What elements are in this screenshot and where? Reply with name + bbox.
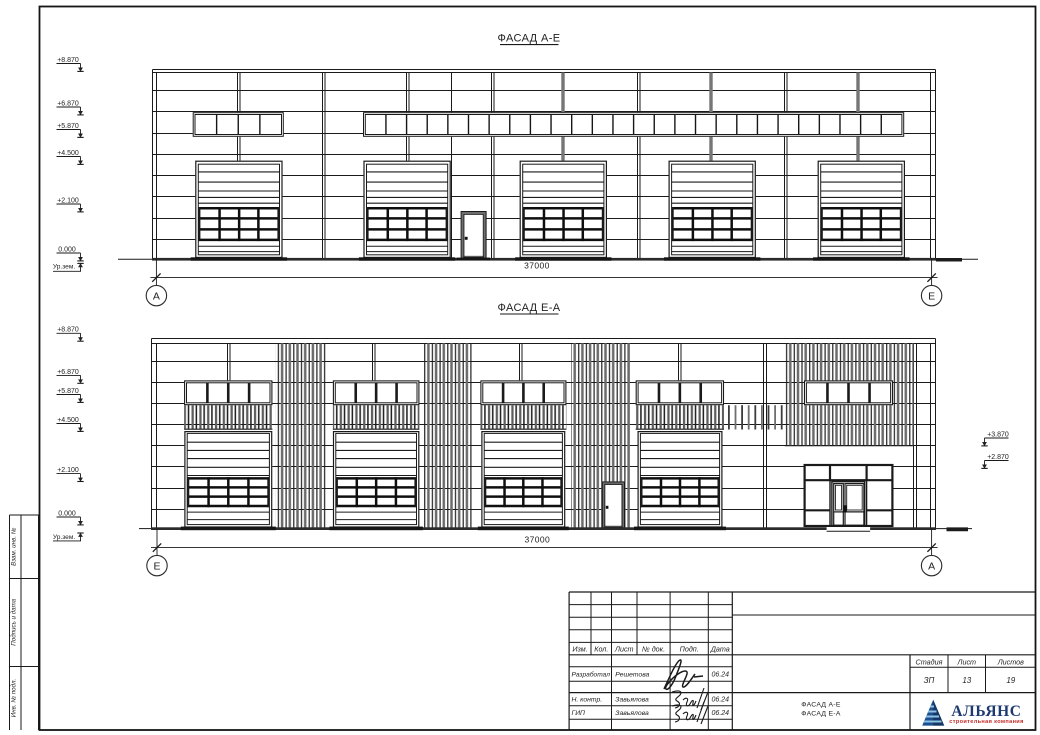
svg-text:+2.870: +2.870 xyxy=(987,454,1009,461)
svg-text:06.24: 06.24 xyxy=(712,710,730,717)
svg-text:Разработал: Разработал xyxy=(572,671,611,679)
svg-text:+5.870: +5.870 xyxy=(57,123,79,130)
svg-text:Лист: Лист xyxy=(614,645,634,654)
svg-text:+6.870: +6.870 xyxy=(57,100,79,107)
svg-text:Ур.зем.: Ур.зем. xyxy=(53,263,76,270)
svg-text:А: А xyxy=(928,560,935,572)
svg-text:Инв. № подл.: Инв. № подл. xyxy=(11,679,18,717)
svg-text:Н. контр.: Н. контр. xyxy=(572,697,603,704)
svg-text:06.24: 06.24 xyxy=(712,672,730,679)
svg-text:+3.870: +3.870 xyxy=(987,431,1009,438)
svg-text:Стадия: Стадия xyxy=(916,657,943,666)
svg-text:Листов: Листов xyxy=(997,657,1024,666)
svg-text:06.24: 06.24 xyxy=(712,697,730,704)
svg-text:+2.100: +2.100 xyxy=(57,467,79,474)
svg-text:Ур.зем.: Ур.зем. xyxy=(53,534,76,541)
svg-text:Завьялова: Завьялова xyxy=(615,710,649,717)
svg-text:ФАСАД А-Е: ФАСАД А-Е xyxy=(801,701,841,708)
svg-text:+4.500: +4.500 xyxy=(57,150,79,157)
svg-text:Кол.: Кол. xyxy=(594,645,608,654)
svg-text:Лист: Лист xyxy=(957,657,977,666)
svg-text:Дата: Дата xyxy=(710,645,730,654)
svg-text:Взам. инв. №: Взам. инв. № xyxy=(11,527,18,566)
svg-text:№ док.: № док. xyxy=(642,645,665,654)
svg-text:Решетова: Решетова xyxy=(615,672,649,679)
svg-text:Подп.: Подп. xyxy=(680,645,699,654)
svg-text:А: А xyxy=(153,290,160,302)
svg-text:Изм.: Изм. xyxy=(572,645,587,654)
svg-text:ГИП: ГИП xyxy=(572,710,586,717)
svg-text:+4.500: +4.500 xyxy=(57,417,79,424)
svg-text:+6.870: +6.870 xyxy=(57,369,79,376)
svg-text:+8.870: +8.870 xyxy=(57,327,79,334)
svg-text:ФАСАД Е-А: ФАСАД Е-А xyxy=(801,710,841,717)
svg-text:37000: 37000 xyxy=(524,534,550,544)
svg-text:ФАСАД Е-А: ФАСАД Е-А xyxy=(497,302,560,314)
svg-text:37000: 37000 xyxy=(524,260,550,270)
svg-text:+8.870: +8.870 xyxy=(57,57,79,64)
svg-text:Е: Е xyxy=(928,290,935,302)
svg-text:АЛЬЯНС: АЛЬЯНС xyxy=(951,703,1021,720)
svg-text:+5.870: +5.870 xyxy=(57,388,79,395)
svg-text:+2.100: +2.100 xyxy=(57,197,79,204)
svg-text:Подпись и дата: Подпись и дата xyxy=(11,598,18,645)
svg-text:0.000: 0.000 xyxy=(58,246,76,253)
svg-text:Е: Е xyxy=(153,560,160,572)
svg-text:ФАСАД А-Е: ФАСАД А-Е xyxy=(497,33,560,45)
svg-text:ЗП: ЗП xyxy=(924,676,935,685)
svg-text:13: 13 xyxy=(962,676,971,685)
svg-text:19: 19 xyxy=(1006,676,1015,685)
svg-text:строительная компания: строительная компания xyxy=(949,719,1023,725)
svg-text:0.000: 0.000 xyxy=(58,510,76,517)
svg-text:Завьялова: Завьялова xyxy=(615,697,649,704)
